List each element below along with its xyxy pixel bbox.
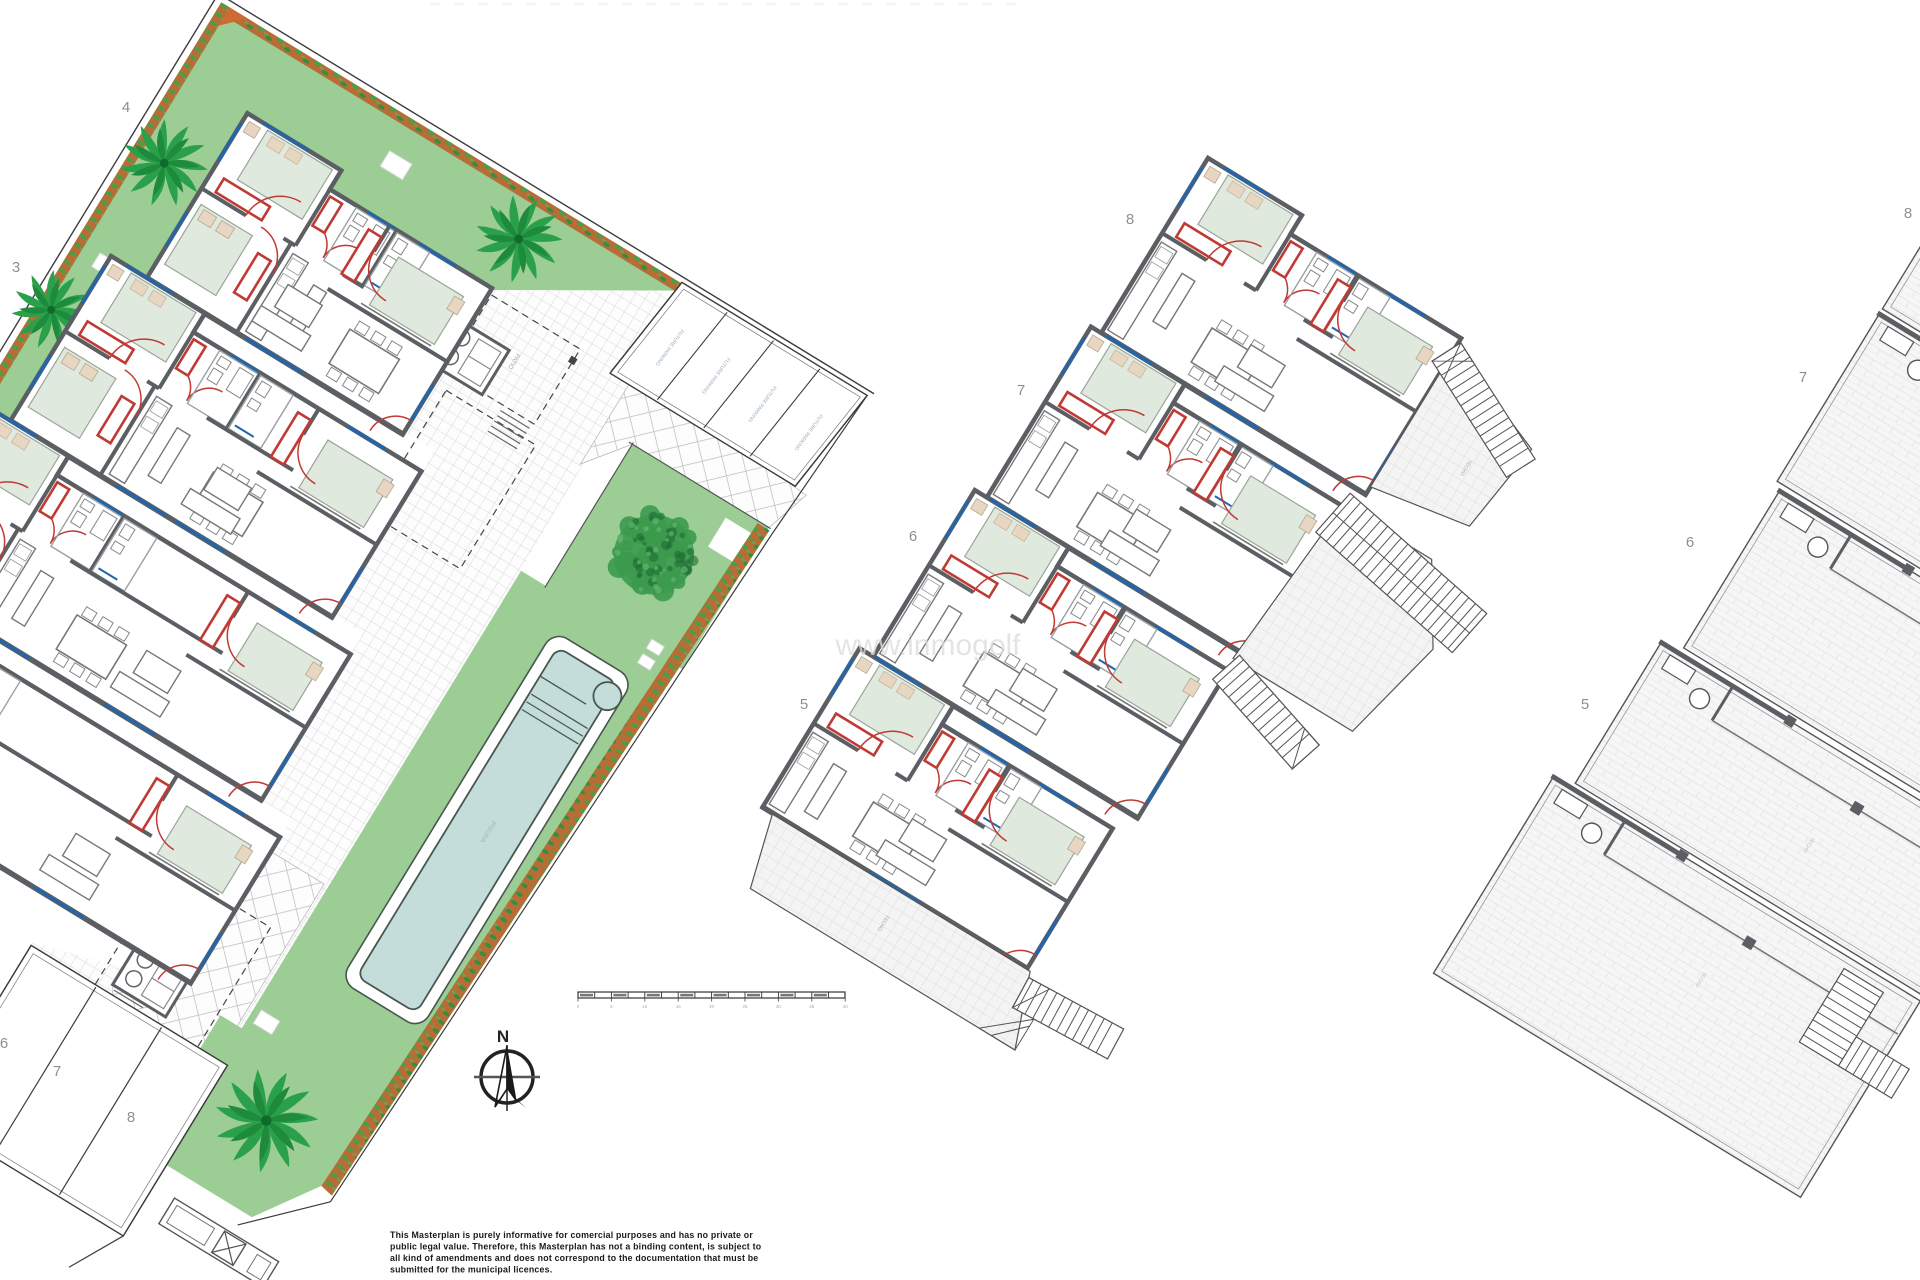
svg-text:7: 7	[53, 1063, 61, 1080]
svg-text:all kind of amendments and doe: all kind of amendments and does not corr…	[390, 1253, 758, 1263]
svg-text:30: 30	[776, 1004, 782, 1009]
svg-text:10: 10	[642, 1004, 648, 1009]
svg-text:7: 7	[1799, 369, 1807, 386]
svg-text:5: 5	[1581, 696, 1589, 713]
svg-text:25: 25	[742, 1004, 748, 1009]
svg-text:8: 8	[127, 1109, 135, 1126]
svg-text:6: 6	[1686, 534, 1694, 551]
svg-text:8: 8	[1904, 205, 1912, 222]
svg-text:6: 6	[909, 528, 917, 545]
svg-text:5: 5	[800, 696, 808, 713]
svg-text:public legal value. Therefore,: public legal value. Therefore, this Mast…	[390, 1242, 762, 1252]
svg-text:N: N	[497, 1027, 509, 1046]
svg-text:4: 4	[122, 99, 130, 116]
svg-text:7: 7	[1017, 382, 1025, 399]
svg-text:40: 40	[843, 1004, 849, 1009]
svg-text:submitted for the municipal li: submitted for the municipal licences.	[390, 1265, 552, 1275]
svg-text:35: 35	[809, 1004, 815, 1009]
svg-text:8: 8	[1126, 211, 1134, 228]
svg-text:15: 15	[676, 1004, 682, 1009]
svg-text:3: 3	[12, 259, 20, 276]
svg-text:www.inmogolf: www.inmogolf	[834, 629, 1021, 662]
svg-text:This Masterplan is purely info: This Masterplan is purely informative fo…	[390, 1230, 753, 1240]
svg-text:6: 6	[0, 1035, 8, 1052]
svg-text:20: 20	[709, 1004, 715, 1009]
